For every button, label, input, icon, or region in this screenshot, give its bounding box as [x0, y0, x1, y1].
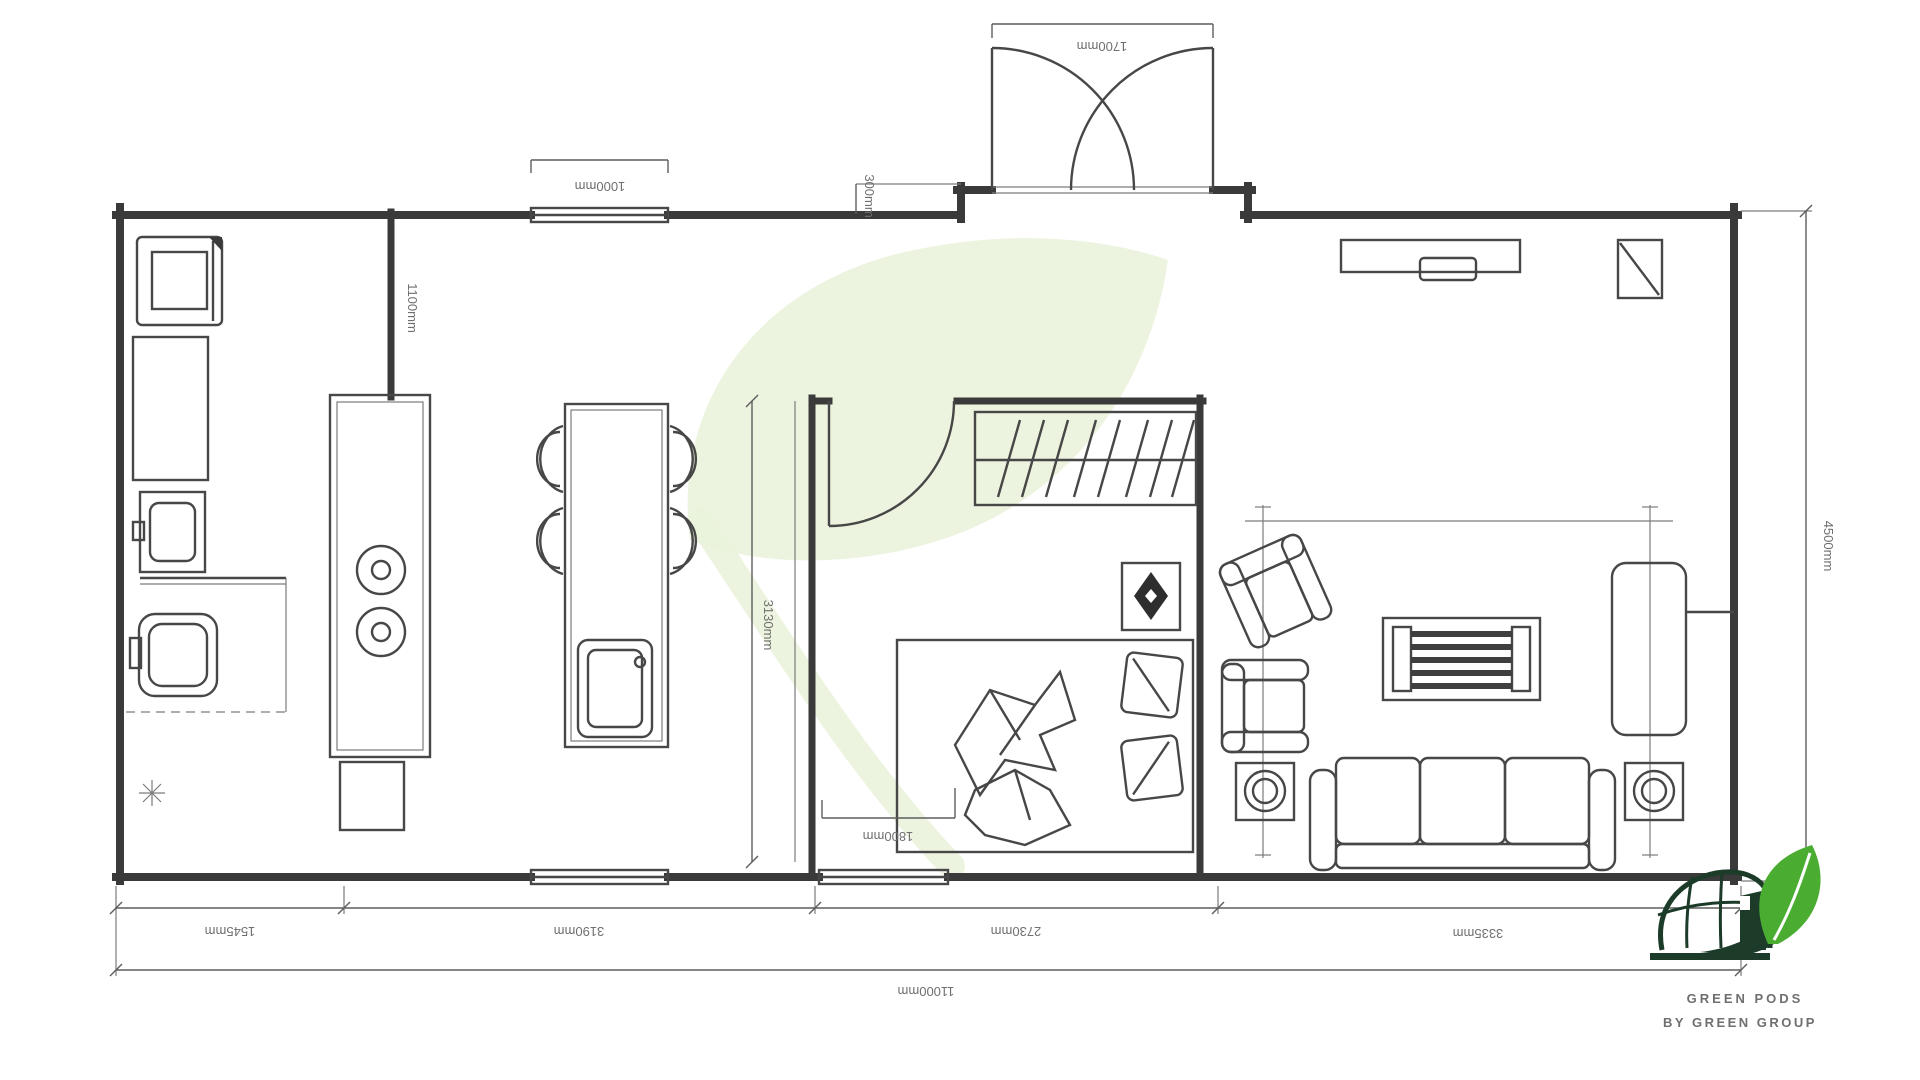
- pillow-1: [1121, 652, 1184, 718]
- console-outline: [1341, 240, 1520, 272]
- window-bottom-kitchen: [531, 870, 668, 884]
- dim-label-overall-width: 11000mm: [898, 984, 955, 999]
- washer-hinge-mark: [209, 237, 222, 251]
- sofa-cushion: [1420, 758, 1505, 844]
- logo-tagline: BY GREEN GROUP: [1663, 1015, 1817, 1030]
- chair-left-1: [540, 426, 563, 492]
- coffee-table-end: [1393, 627, 1411, 691]
- logo-leaf: [1759, 845, 1820, 944]
- plant-table-left: [1236, 763, 1294, 820]
- bathroom-cabinet: [133, 337, 208, 480]
- dim-label-bathroom-width: 1545mm: [205, 924, 256, 939]
- chair-left-2: [540, 508, 563, 574]
- washing-machine: [137, 237, 222, 325]
- armchair-arm: [1279, 532, 1334, 622]
- floor-plan-page: 1700mm 1000mm 300mm 1100mm 3130mm: [0, 0, 1920, 1080]
- burner-1-center: [372, 561, 390, 579]
- blanket-crumple-2: [965, 770, 1070, 845]
- armchair-seat: [1244, 680, 1304, 732]
- dim-entry-door: 1700mm: [992, 24, 1213, 54]
- logo-name: GREEN PODS: [1687, 991, 1804, 1006]
- dim-bottom-segments: 1545mm 3190mm 2730mm 3335mm: [110, 886, 1747, 941]
- blanket-crumple-1: [955, 672, 1075, 795]
- pillow-2: [1121, 735, 1184, 801]
- bathroom: [126, 212, 391, 806]
- toilet: [130, 614, 217, 696]
- burner-1: [357, 546, 405, 594]
- armchair-second: [1222, 660, 1308, 752]
- dim-kitchen-wall: 1100mm: [405, 283, 420, 333]
- dim-label-kitchen-width: 3190mm: [554, 924, 605, 939]
- floor-drain: [139, 780, 165, 806]
- sink-faucet: [133, 522, 144, 540]
- armchair-back: [1217, 532, 1306, 588]
- sofa-armrest: [1589, 770, 1615, 870]
- sink-faucet: [635, 657, 645, 667]
- pillow-fold: [1127, 658, 1175, 711]
- corner-unit-fold: [1620, 243, 1659, 295]
- kitchen: [330, 395, 430, 830]
- dim-overall-depth: 4500mm: [1741, 205, 1836, 887]
- toilet-bowl: [139, 614, 217, 696]
- window-top: [531, 208, 668, 222]
- leaf-watermark: [688, 238, 1168, 866]
- tv-icon: [1420, 258, 1476, 280]
- nightstand: [1122, 563, 1180, 630]
- armchair-arm: [1222, 732, 1308, 752]
- dining-chairs: [537, 426, 696, 574]
- burner-2: [357, 608, 405, 656]
- plant-table-right: [1625, 763, 1683, 820]
- washer-door: [152, 252, 207, 309]
- dim-label-recess: 300mm: [862, 174, 877, 217]
- plant-icon-inner: [1253, 779, 1277, 803]
- dim-top-window: 1000mm: [531, 160, 668, 194]
- washer-body: [137, 237, 222, 325]
- toilet-seat: [149, 624, 207, 686]
- sofa-armrest: [1310, 770, 1336, 870]
- dining-area: [537, 404, 696, 747]
- island-sink: [578, 640, 652, 737]
- cooktop: [357, 546, 405, 656]
- ground-bar: [1650, 953, 1770, 960]
- tv-console: [1341, 240, 1520, 280]
- dim-label-living-width: 3335mm: [1453, 926, 1504, 941]
- pod-dome-grid: [1720, 873, 1722, 948]
- bathroom-sink: [133, 492, 205, 572]
- armchair-seat: [1244, 560, 1314, 638]
- dining-island-inner: [571, 410, 662, 741]
- sofa: [1310, 758, 1615, 870]
- pillow-fold: [1127, 742, 1175, 795]
- armchair-tilted: [1217, 532, 1334, 650]
- pod-dome-grid: [1687, 877, 1692, 948]
- daybed-outline: [1612, 563, 1686, 735]
- dim-label-bedroom-width: 2730mm: [991, 924, 1042, 939]
- dim-label-entry-door: 1700mm: [1077, 39, 1128, 54]
- kitchen-counter-inner: [337, 402, 423, 750]
- sink-basin: [150, 503, 195, 561]
- corner-unit: [1618, 240, 1662, 298]
- floor-plan-drawing: 1700mm 1000mm 300mm 1100mm 3130mm: [0, 0, 1920, 1080]
- watermark-leaf-stem: [700, 520, 952, 866]
- plant-icon: [1634, 771, 1674, 811]
- green-pods-logo: GREEN PODS BY GREEN GROUP: [1650, 845, 1821, 1030]
- kitchen-counter: [330, 395, 430, 757]
- living-room: [1217, 240, 1734, 870]
- dim-label-top-window: 1000mm: [575, 179, 626, 194]
- door-swing-left: [992, 48, 1134, 190]
- entry-double-door: [992, 48, 1213, 193]
- dim-label-dining-length: 3130mm: [761, 600, 776, 651]
- bed: [897, 640, 1193, 852]
- sofa-cushion: [1336, 758, 1420, 844]
- window-bottom-bedroom: [819, 870, 948, 884]
- coffee-table-end: [1512, 627, 1530, 691]
- plant-icon-inner: [1642, 779, 1666, 803]
- plant-icon: [1245, 771, 1285, 811]
- sofa-cushion: [1505, 758, 1589, 844]
- dim-label-bed-width: 1800mm: [863, 829, 914, 844]
- burner-2-center: [372, 623, 390, 641]
- kitchen-base-cabinet: [340, 762, 404, 830]
- dim-label-kitchen-wall: 1100mm: [405, 283, 420, 333]
- coffee-table: [1383, 618, 1540, 700]
- pod-door-notch: [1740, 896, 1750, 910]
- door-swing-right: [1071, 48, 1213, 190]
- dim-label-overall-depth: 4500mm: [1821, 521, 1836, 572]
- armchair-arm: [1217, 560, 1272, 650]
- daybed-bench: [1612, 563, 1734, 735]
- sofa-backrest: [1336, 844, 1589, 868]
- coffee-table-slats: [1411, 634, 1512, 686]
